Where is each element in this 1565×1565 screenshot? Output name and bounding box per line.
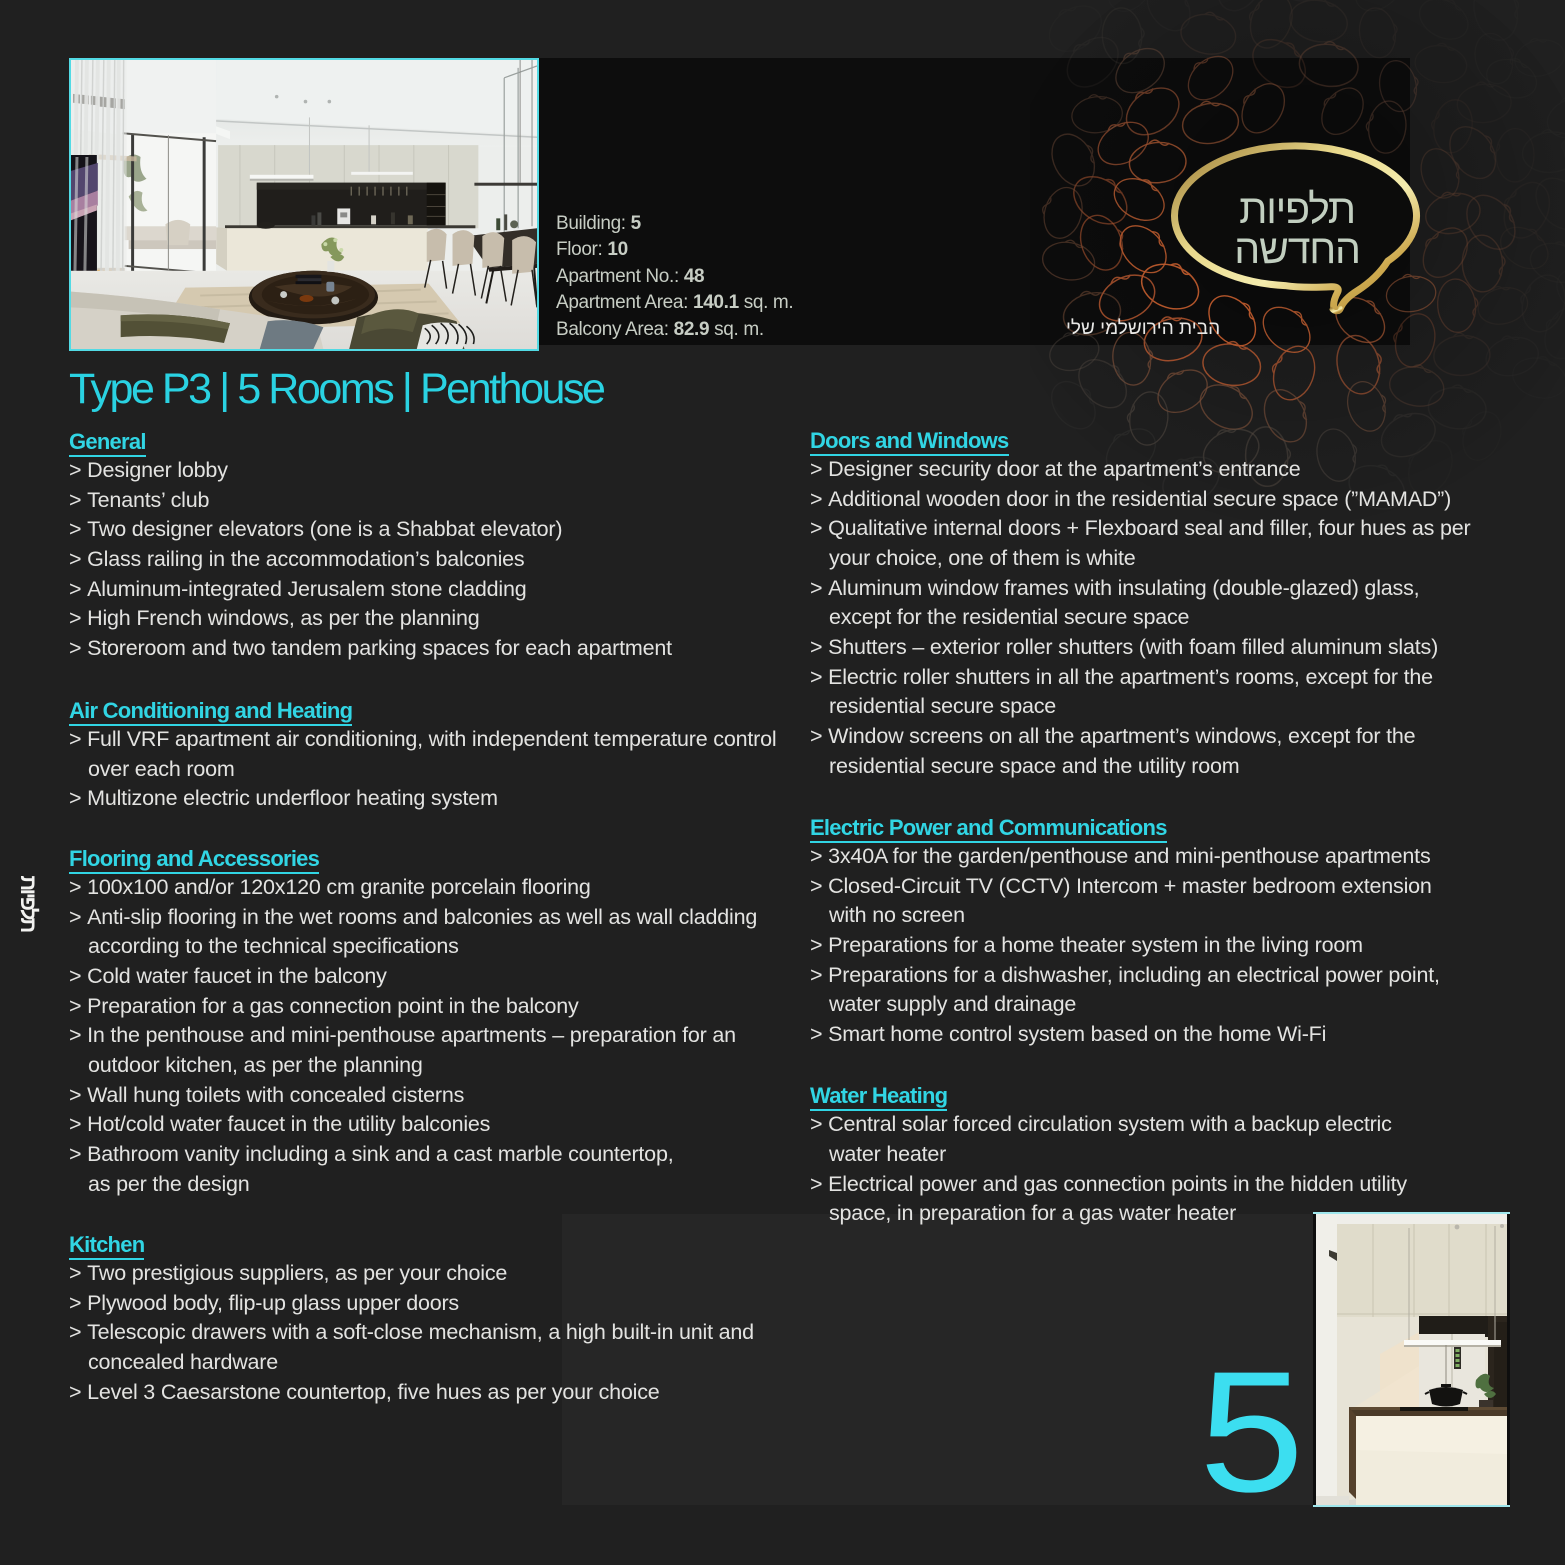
svg-text:החדשה: החדשה — [1234, 226, 1360, 272]
